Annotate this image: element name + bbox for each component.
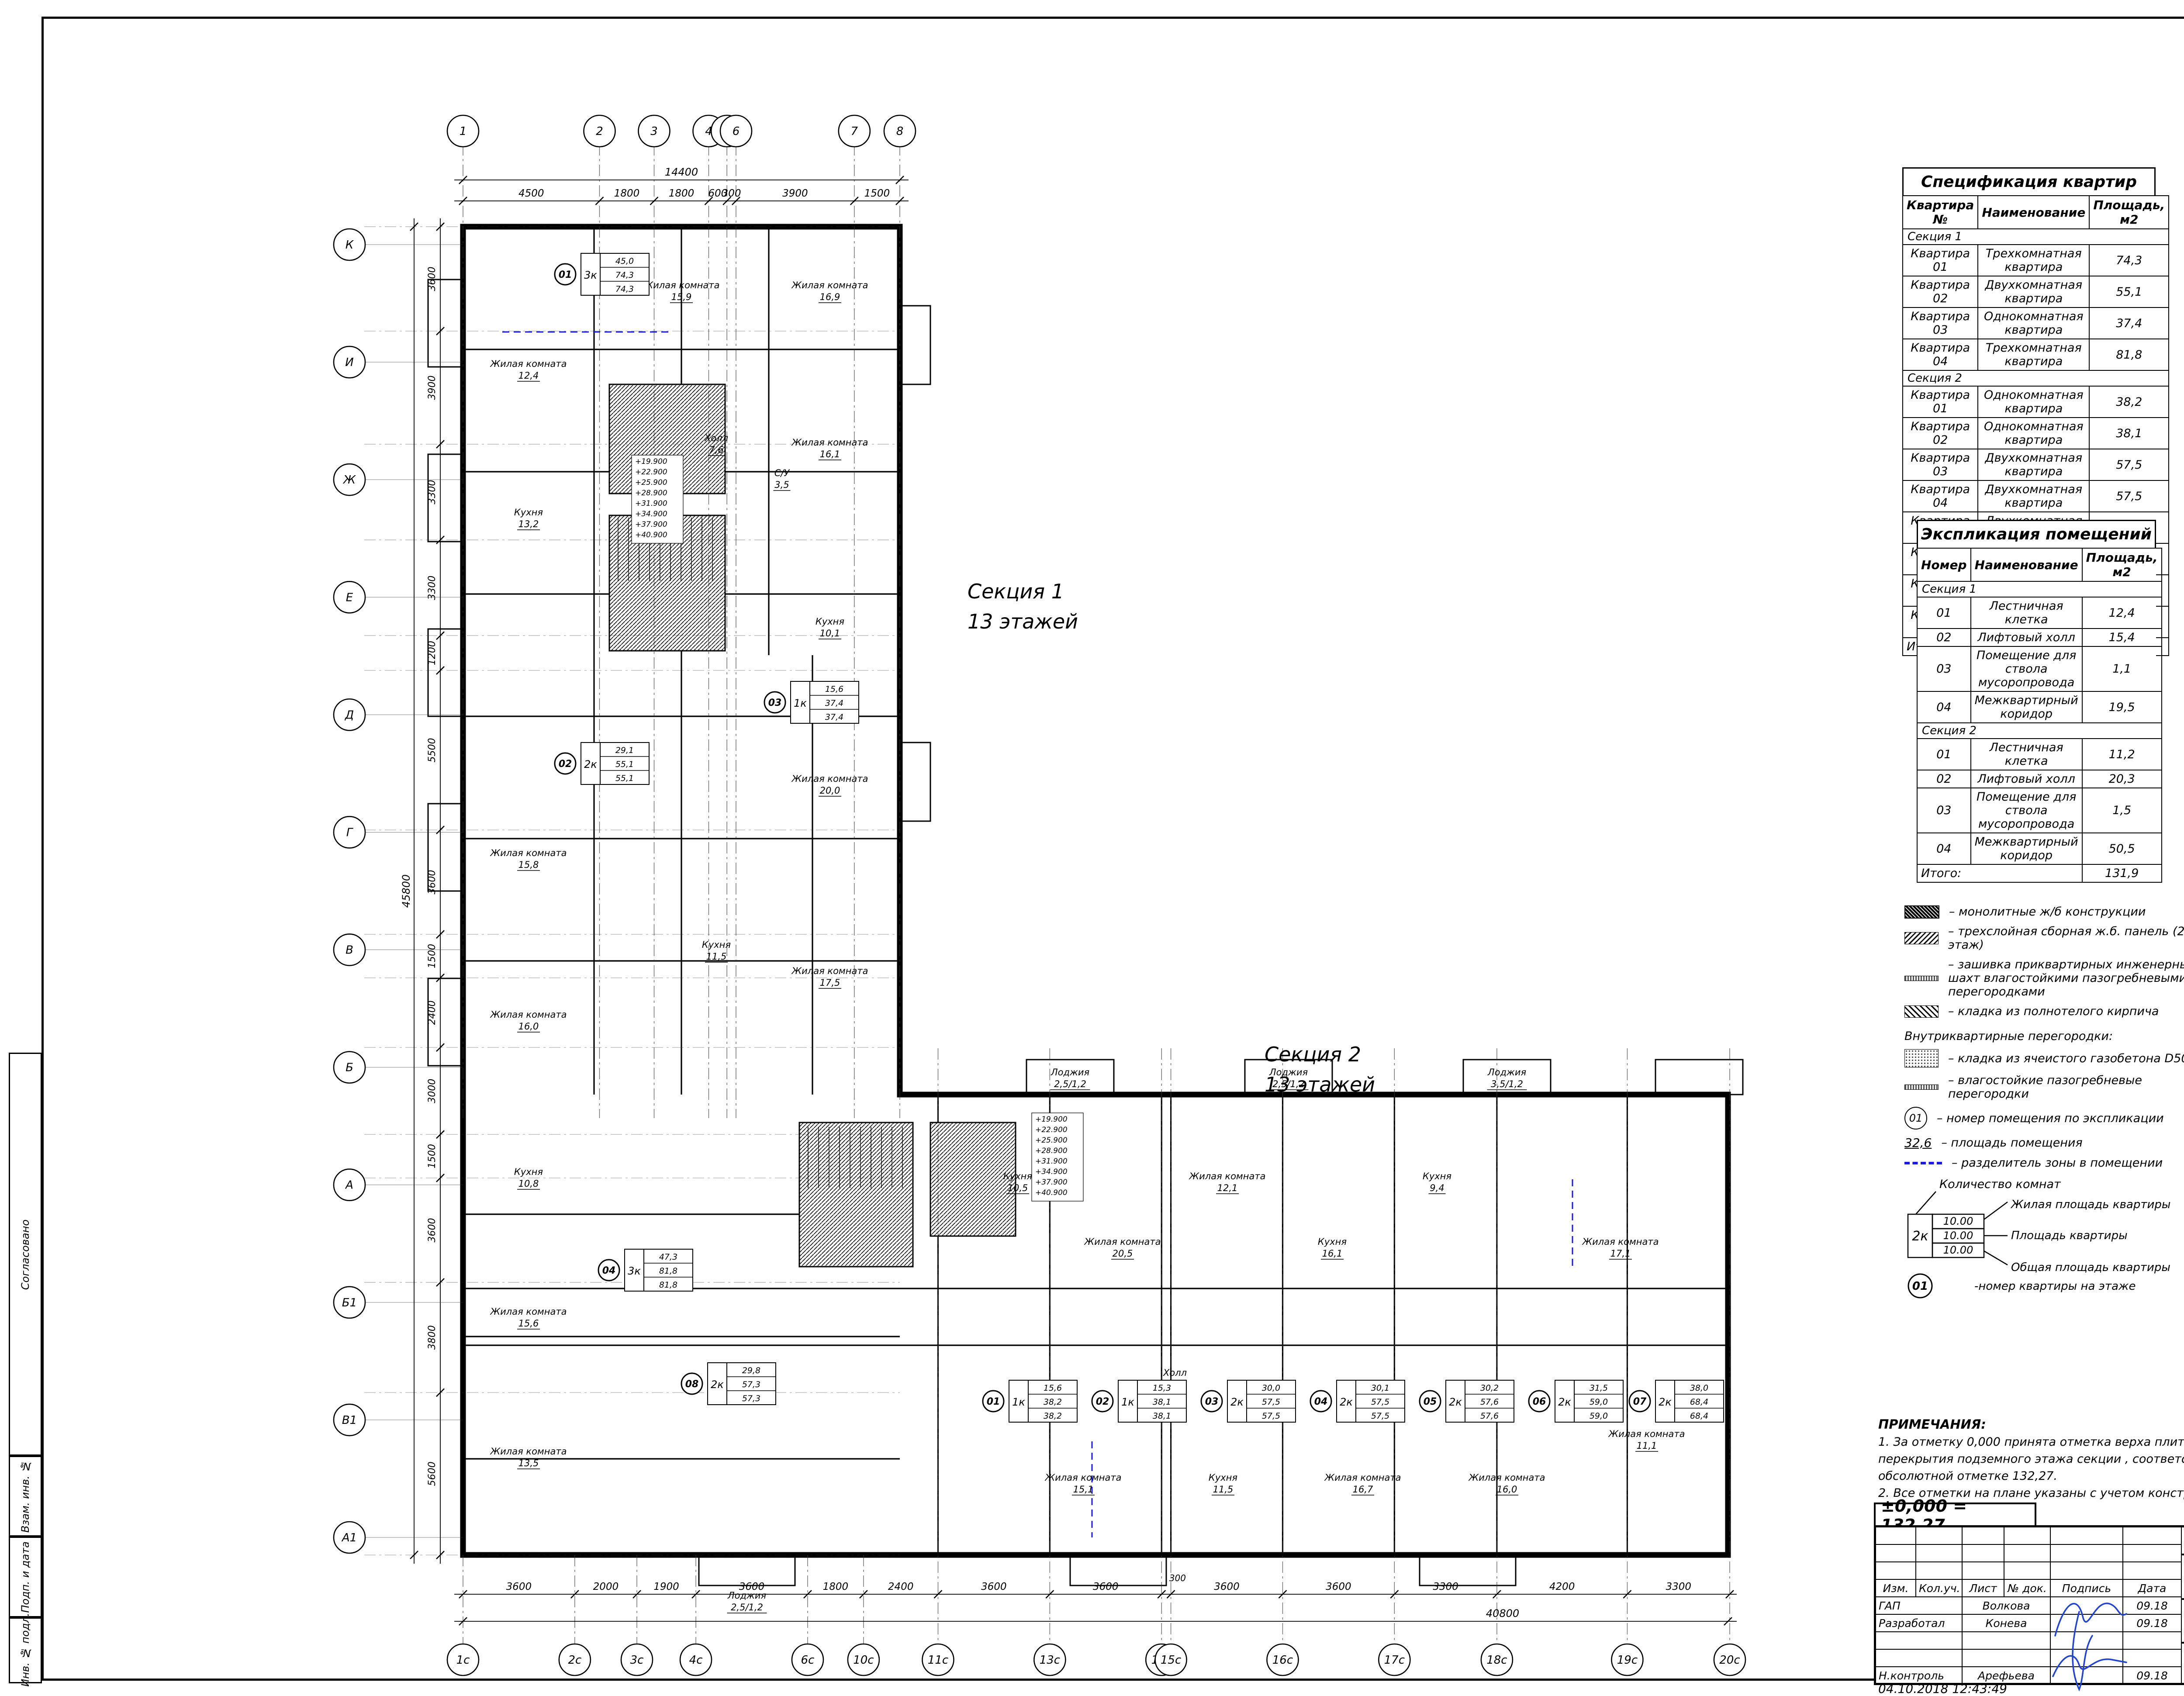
svg-text:3к: 3к [628, 1265, 641, 1277]
svg-text:3,5/1,2: 3,5/1,2 [1491, 1079, 1523, 1089]
table-row: Квартира 03Двухкомнатная квартира57,5 [1903, 449, 2169, 480]
svg-text:3600: 3600 [427, 870, 438, 895]
cell [2050, 1667, 2123, 1684]
svg-text:Жилая комната: Жилая комната [791, 280, 868, 290]
svg-text:1с: 1с [456, 1654, 470, 1667]
cell [2050, 1614, 2123, 1632]
cell [2004, 1562, 2050, 1579]
cell: 50,5 [2082, 833, 2162, 864]
brick-swatch-icon [1904, 1005, 1939, 1018]
table-row: 02Лифтовый холл15,4 [1917, 629, 2162, 646]
svg-text:3000: 3000 [427, 1079, 438, 1103]
svg-text:2400: 2400 [888, 1581, 914, 1592]
svg-text:02: 02 [1096, 1396, 1109, 1407]
svg-text:8: 8 [896, 125, 904, 138]
svg-text:1: 1 [460, 125, 467, 138]
svg-text:3600: 3600 [506, 1581, 532, 1592]
cell [1916, 1562, 1962, 1579]
cell [2050, 1649, 2123, 1667]
svg-text:Холл: Холл [704, 433, 728, 443]
cell: Конева [1962, 1614, 2050, 1632]
svg-text:3600: 3600 [1093, 1581, 1119, 1592]
cell: Итого: [1917, 864, 2082, 882]
svg-text:4200: 4200 [1549, 1581, 1575, 1592]
svg-text:3600: 3600 [1214, 1581, 1240, 1592]
svg-text:16,9: 16,9 [820, 292, 840, 302]
plan-walls [428, 227, 1743, 1585]
svg-text:17с: 17с [1384, 1654, 1405, 1667]
svg-text:Общая площадь квартиры: Общая площадь квартиры [2011, 1261, 2170, 1274]
cell: 57,5 [2089, 480, 2169, 512]
cell: 81,8 [2089, 339, 2169, 370]
svg-text:11,5: 11,5 [1213, 1484, 1234, 1495]
svg-text:3600: 3600 [427, 267, 438, 291]
cell [1962, 1527, 2004, 1544]
sign-row: ГАПВолкова09.18 [1876, 1597, 2181, 1614]
svg-text:11,1: 11,1 [1637, 1440, 1657, 1451]
cell: 03 [1917, 646, 1971, 691]
svg-text:Жилая комната: Жилая комната [1189, 1171, 1266, 1181]
cell: Помещение для ствола мусоропровода [1971, 646, 2082, 691]
legend-item: Внутриквартирные перегородки: [1904, 1029, 2184, 1043]
svg-text:37,4: 37,4 [825, 712, 843, 722]
cell: 37,4 [2089, 307, 2169, 339]
svg-text:12,1: 12,1 [1217, 1183, 1238, 1193]
svg-text:15,6: 15,6 [518, 1318, 539, 1329]
svg-text:10,1: 10,1 [820, 628, 840, 639]
cell: Помещение для ствола мусоропровода [1971, 788, 2082, 833]
cell: Лист [1962, 1579, 2004, 1597]
svg-text:+31.900: +31.900 [635, 499, 667, 508]
cell: Двухкомнатная квартира [1978, 276, 2089, 307]
cell: Однокомнатная квартира [1978, 386, 2089, 418]
cell: 1,1 [2082, 646, 2162, 691]
legend-item: – кладка из полнотелого кирпича [1904, 1005, 2184, 1018]
svg-text:10,8: 10,8 [518, 1178, 539, 1189]
svg-text:Кухня: Кухня [816, 616, 844, 627]
cell [2004, 1527, 2050, 1544]
cell: № док. [2004, 1579, 2050, 1597]
cell: Межквартирный коридор [1971, 833, 2082, 864]
svg-text:А1: А1 [341, 1531, 357, 1544]
svg-text:Кухня: Кухня [514, 1167, 543, 1177]
svg-text:57,5: 57,5 [1371, 1397, 1389, 1407]
svg-text:Жилая комната: Жилая комната [643, 280, 720, 290]
svg-text:57,5: 57,5 [1262, 1411, 1280, 1421]
svg-text:10.00: 10.00 [1943, 1244, 1973, 1256]
sign-row [1876, 1632, 2181, 1649]
cell [2123, 1632, 2181, 1649]
svg-text:В1: В1 [342, 1414, 357, 1427]
title-block-botrow: План 3-13 этажа. М 1:100 ПИК ГРУППА ООО … [2182, 1644, 2184, 1681]
svg-text:15,6: 15,6 [825, 684, 843, 694]
svg-text:57,5: 57,5 [1371, 1411, 1389, 1421]
svg-text:Жилая комната: Жилая комната [1324, 1472, 1401, 1483]
cell [1876, 1649, 1962, 1667]
svg-text:+34.900: +34.900 [635, 510, 667, 518]
svg-text:2к: 2к [1340, 1396, 1353, 1408]
svg-text:03: 03 [1205, 1396, 1219, 1407]
svg-text:10.00: 10.00 [1943, 1230, 1973, 1242]
legend-text: – зашивка приквартирных инженерных шахт … [1948, 958, 2184, 998]
svg-text:4с: 4с [689, 1654, 703, 1667]
legend: – монолитные ж/б конструкции– трехслойна… [1904, 899, 2184, 1310]
table-row: 01Лестничная клетка11,2 [1917, 739, 2162, 770]
cell: Однокомнатная квартира [1978, 307, 2089, 339]
svg-text:1500: 1500 [427, 1144, 438, 1168]
blank-row [1876, 1562, 2181, 1579]
svg-text:07: 07 [1633, 1396, 1647, 1407]
svg-text:Жилая комната: Жилая комната [791, 437, 868, 448]
cell [1916, 1544, 1962, 1562]
svg-text:Кухня: Кухня [1318, 1237, 1347, 1247]
svg-text:57,6: 57,6 [1480, 1411, 1499, 1421]
svg-text:57,3: 57,3 [742, 1394, 760, 1403]
svg-text:10.00: 10.00 [1943, 1215, 1973, 1227]
legend-text: – трехслойная сборная ж.б. панель (2-19 … [1948, 925, 2184, 952]
svg-text:16,0: 16,0 [1497, 1484, 1517, 1495]
svg-text:Площадь квартиры: Площадь квартиры [2011, 1229, 2128, 1242]
cell: ГАП [1876, 1597, 1962, 1614]
svg-text:4500: 4500 [518, 188, 544, 199]
legend-item: 01– номер помещения по экспликации [1904, 1107, 2184, 1130]
svg-text:1800: 1800 [614, 188, 640, 199]
svg-text:Жилая комната: Жилая комната [791, 774, 868, 784]
svg-text:3300: 3300 [427, 480, 438, 504]
svg-text:38,1: 38,1 [1153, 1411, 1171, 1421]
spec-col-name: Наименование [1978, 196, 2089, 229]
apartment-tag-legend: Количество комнат2к10.0010.0010.00Жилая … [1904, 1176, 2184, 1307]
legend-item: – зашивка приквартирных инженерных шахт … [1904, 958, 2184, 998]
svg-text:2к: 2к [1230, 1396, 1244, 1408]
svg-text:1500: 1500 [864, 188, 890, 199]
title-block-sign-grid: Изм.Кол.уч.Лист№ док.ПодписьДатаГАПВолко… [1875, 1527, 2182, 1685]
svg-text:+34.900: +34.900 [1035, 1168, 1068, 1176]
section-row: Секция 2 [1917, 723, 2162, 739]
svg-text:2к: 2к [1449, 1396, 1462, 1408]
cell: Трехкомнатная квартира [1978, 245, 2089, 276]
svg-text:+28.900: +28.900 [635, 489, 667, 497]
svg-text:1800: 1800 [669, 188, 695, 199]
table-row: 03Помещение для ствола мусоропровода1,5 [1917, 788, 2162, 833]
svg-text:В: В [346, 944, 353, 957]
cell: 09.18 [2123, 1597, 2181, 1614]
svg-text:10,5: 10,5 [1008, 1183, 1028, 1193]
blank-row [1876, 1544, 2181, 1562]
svg-text:47,3: 47,3 [659, 1252, 677, 1262]
table-row: 01Лестничная клетка12,4 [1917, 597, 2162, 629]
title-block: Изм.Кол.уч.Лист№ док.ПодписьДатаГАПВолко… [1874, 1525, 2184, 1685]
svg-text:К: К [346, 238, 354, 252]
title-block-right: 30-0218-РЕН-ПИР-АР-ГЧ «Жилой дом с инжен… [2182, 1527, 2184, 1681]
legend-item: – разделитель зоны в помещении [1904, 1156, 2184, 1170]
svg-text:68,4: 68,4 [1690, 1411, 1708, 1421]
cell: 11,2 [2082, 739, 2162, 770]
total-row: Итого:131,9 [1917, 864, 2162, 882]
svg-text:57,6: 57,6 [1480, 1397, 1499, 1407]
cell: Квартира 04 [1903, 339, 1978, 370]
legend-text: – монолитные ж/б конструкции [1949, 905, 2146, 919]
room-number-icon: 01 [1904, 1107, 1927, 1130]
legend-text: – площадь помещения [1941, 1136, 2082, 1150]
blank-row [1876, 1527, 2181, 1544]
svg-text:300: 300 [1169, 1573, 1186, 1583]
svg-text:3900: 3900 [782, 188, 808, 199]
cell: Секция 2 [1917, 723, 2162, 739]
svg-text:17,1: 17,1 [1610, 1248, 1631, 1259]
svg-text:18с: 18с [1486, 1654, 1507, 1667]
cell: 03 [1917, 788, 1971, 833]
svg-text:38,0: 38,0 [1690, 1383, 1708, 1393]
svg-text:+37.900: +37.900 [1035, 1178, 1068, 1187]
document-designation: 30-0218-РЕН-ПИР-АР-ГЧ [2182, 1527, 2184, 1555]
svg-text:29,1: 29,1 [615, 746, 634, 755]
cell: 04 [1917, 833, 1971, 864]
svg-text:38,1: 38,1 [1153, 1397, 1171, 1407]
legend-text: – влагостойкие пазогребневые перегородки [1948, 1074, 2184, 1101]
svg-text:13,2: 13,2 [518, 519, 539, 529]
svg-text:13,5: 13,5 [518, 1458, 539, 1468]
svg-text:74,3: 74,3 [615, 284, 634, 294]
svg-text:5500: 5500 [427, 738, 438, 763]
svg-text:Б1: Б1 [342, 1296, 357, 1309]
cell: Двухкомнатная квартира [1978, 449, 2089, 480]
svg-text:30,1: 30,1 [1371, 1383, 1389, 1393]
cell: Секция 1 [1903, 229, 2169, 245]
svg-text:Жилая комната: Жилая комната [1084, 1237, 1161, 1247]
svg-text:+28.900: +28.900 [1035, 1147, 1068, 1155]
spec-header-row: Квартира № Наименование Площадь, м2 [1903, 196, 2169, 229]
sign-row: РазработалКонева09.18 [1876, 1614, 2181, 1632]
cell: Квартира 01 [1903, 386, 1978, 418]
svg-text:Жилая комната: Жилая комната [1468, 1472, 1545, 1483]
svg-text:Холл: Холл [1163, 1368, 1187, 1378]
svg-text:04: 04 [1314, 1396, 1328, 1407]
sign-header-row: Изм.Кол.уч.Лист№ док.ПодписьДата [1876, 1579, 2181, 1597]
svg-text:45,0: 45,0 [615, 256, 634, 266]
svg-text:16,1: 16,1 [1322, 1248, 1343, 1259]
svg-text:38,2: 38,2 [1044, 1411, 1062, 1421]
cell: Лифтовый холл [1971, 770, 2082, 788]
cell: Секция 1 [1917, 581, 2162, 597]
table-row: Квартира 01Однокомнатная квартира38,2 [1903, 386, 2169, 418]
table-row: 04Межквартирный коридор50,5 [1917, 833, 2162, 864]
svg-text:12,4: 12,4 [518, 370, 539, 381]
thin-swatch-icon [1904, 976, 1939, 981]
cell: 20,3 [2082, 770, 2162, 788]
legend-text: – разделитель зоны в помещении [1952, 1156, 2163, 1170]
svg-text:2400: 2400 [427, 1000, 438, 1025]
gasblock-swatch-icon [1904, 1049, 1939, 1067]
svg-text:Д: Д [345, 708, 354, 722]
table-row: Квартира 04Трехкомнатная квартира81,8 [1903, 339, 2169, 370]
svg-text:3600: 3600 [427, 1218, 438, 1242]
svg-text:Жилая комната: Жилая комната [791, 966, 868, 976]
svg-text:59,0: 59,0 [1590, 1397, 1608, 1407]
svg-text:30,0: 30,0 [1262, 1383, 1280, 1393]
svg-text:81,8: 81,8 [659, 1280, 677, 1290]
cell: Изм. [1876, 1579, 1916, 1597]
svg-text:3300: 3300 [1433, 1581, 1458, 1592]
svg-text:81,8: 81,8 [659, 1266, 677, 1276]
svg-text:Лоджия: Лоджия [1051, 1067, 1089, 1078]
svg-text:Ж: Ж [342, 473, 356, 487]
svg-text:10с: 10с [853, 1654, 874, 1667]
panel-swatch-icon [1904, 932, 1939, 944]
cell: Дата [2123, 1579, 2181, 1597]
cell: 02 [1917, 629, 1971, 646]
cell: 19,5 [2082, 691, 2162, 723]
svg-text:3300: 3300 [427, 576, 438, 600]
cell: Квартира 04 [1903, 480, 1978, 512]
svg-text:6: 6 [733, 125, 740, 138]
svg-text:29,8: 29,8 [742, 1366, 760, 1375]
svg-text:14400: 14400 [665, 166, 698, 178]
svg-text:3к: 3к [584, 269, 597, 281]
cell: 131,9 [2082, 864, 2162, 882]
svg-text:+37.900: +37.900 [635, 520, 667, 529]
svg-text:15,9: 15,9 [671, 292, 692, 302]
svg-text:Кухня: Кухня [1003, 1171, 1032, 1181]
table-row: 04Межквартирный коридор19,5 [1917, 691, 2162, 723]
svg-text:Жилая комната: Жилая комната [490, 1446, 567, 1457]
svg-text:11с: 11с [928, 1654, 948, 1667]
cell [2004, 1544, 2050, 1562]
svg-text:15,6: 15,6 [1044, 1383, 1062, 1393]
svg-text:Жилая комната: Жилая комната [490, 848, 567, 858]
cell: Лестничная клетка [1971, 739, 2082, 770]
cell [2050, 1597, 2123, 1614]
svg-text:01: 01 [1912, 1280, 1928, 1293]
table-row: Квартира 03Однокомнатная квартира37,4 [1903, 307, 2169, 339]
svg-text:6с: 6с [801, 1654, 815, 1667]
cell: 09.18 [2123, 1667, 2181, 1684]
svg-text:Б: Б [346, 1061, 353, 1074]
svg-text:7: 7 [851, 125, 858, 138]
svg-text:+19.900: +19.900 [1035, 1115, 1068, 1124]
svg-text:Жилая площадь квартиры: Жилая площадь квартиры [2010, 1198, 2170, 1211]
cell [2050, 1632, 2123, 1649]
svg-text:1200: 1200 [427, 641, 438, 665]
spec-col-number: Квартира № [1903, 196, 1978, 229]
svg-text:11,5: 11,5 [706, 951, 727, 962]
svg-text:С/У: С/У [774, 468, 790, 478]
floor-plan-drawing: 4500180018006003003900150014400360020001… [0, 0, 2184, 1696]
cell [2123, 1562, 2181, 1579]
svg-text:Жилая комната: Жилая комната [490, 1306, 567, 1317]
svg-text:15с: 15с [1161, 1654, 1181, 1667]
svg-text:3800: 3800 [427, 1325, 438, 1350]
zero-elevation-box: ±0,000 = 132,27 [1874, 1503, 2036, 1529]
svg-text:Лоджия: Лоджия [727, 1590, 766, 1601]
svg-text:55,1: 55,1 [615, 760, 634, 769]
svg-text:2к: 2к [584, 758, 597, 770]
svg-text:20с: 20с [1719, 1654, 1740, 1667]
svg-text:2с: 2с [568, 1654, 581, 1667]
svg-text:2к: 2к [711, 1378, 724, 1391]
svg-text:1к: 1к [1012, 1396, 1025, 1408]
svg-text:06: 06 [1533, 1396, 1546, 1407]
sheet-title: План 3-13 этажа. М 1:100 [2182, 1644, 2184, 1681]
cell: 12,4 [2082, 597, 2162, 629]
svg-text:03: 03 [768, 698, 782, 708]
cell [1876, 1544, 1916, 1562]
svg-text:59,0: 59,0 [1590, 1411, 1608, 1421]
cell [1876, 1527, 1916, 1544]
svg-text:19с: 19с [1617, 1654, 1638, 1667]
svg-text:68,4: 68,4 [1690, 1397, 1708, 1407]
section-row: Секция 1 [1903, 229, 2169, 245]
cell: 74,3 [2089, 245, 2169, 276]
legend-item: – кладка из ячеистого газобетона D500 [1904, 1049, 2184, 1067]
svg-text:16,1: 16,1 [820, 449, 840, 459]
cell [2123, 1544, 2181, 1562]
svg-text:3с: 3с [630, 1654, 644, 1667]
cell [1962, 1562, 2004, 1579]
cell: 01 [1917, 597, 1971, 629]
area-sample: 32,6 [1904, 1136, 1932, 1150]
cell [1962, 1632, 2050, 1649]
cell: Квартира 03 [1903, 307, 1978, 339]
svg-text:Жилая комната: Жилая комната [1608, 1429, 1685, 1439]
cell [2123, 1649, 2181, 1667]
svg-text:55,1: 55,1 [615, 774, 634, 783]
object-name: Жилой дом. Корпус 1.1 [2182, 1600, 2184, 1642]
sign-row [1876, 1649, 2181, 1667]
svg-text:3,5: 3,5 [774, 480, 789, 490]
svg-text:+25.900: +25.900 [1035, 1136, 1068, 1145]
svg-text:Кухня: Кухня [514, 507, 543, 518]
svg-text:3300: 3300 [1666, 1581, 1691, 1592]
svg-text:1к: 1к [794, 697, 807, 709]
thin-swatch-icon [1904, 1085, 1939, 1090]
cell [2050, 1562, 2123, 1579]
legend-item: – трехслойная сборная ж.б. панель (2-19 … [1904, 925, 2184, 952]
cell: Лестничная клетка [1971, 597, 2082, 629]
svg-text:20,5: 20,5 [1113, 1248, 1133, 1259]
cell [1876, 1632, 1962, 1649]
cell: 55,1 [2089, 276, 2169, 307]
svg-text:300: 300 [722, 188, 741, 199]
svg-text:2к: 2к [1558, 1396, 1571, 1408]
svg-text:+40.900: +40.900 [635, 531, 667, 539]
section-row: Секция 1 [1917, 581, 2162, 597]
svg-text:2к: 2к [1912, 1229, 1928, 1244]
svg-text:+25.900: +25.900 [635, 478, 667, 487]
svg-text:31,5: 31,5 [1590, 1383, 1608, 1393]
svg-text:Жилая комната: Жилая комната [490, 1009, 567, 1020]
spec-table-title: Спецификация квартир [1902, 167, 2156, 195]
rooms-explication-table: Экспликация помещений Номер Наименование… [1917, 520, 2156, 883]
svg-text:2к: 2к [1659, 1396, 1672, 1408]
cell: Лифтовый холл [1971, 629, 2082, 646]
svg-text:Кухня: Кухня [1423, 1171, 1451, 1181]
svg-text:04: 04 [602, 1265, 616, 1276]
cell [1916, 1527, 1962, 1544]
svg-text:А: А [345, 1179, 353, 1192]
svg-text:1900: 1900 [653, 1581, 679, 1592]
svg-text:-номер квартиры на этаже: -номер квартиры на этаже [1974, 1280, 2136, 1293]
project-name: «Жилой дом с инженерными сетями и благоу… [2182, 1555, 2184, 1600]
spec-col-area: Площадь, м2 [2089, 196, 2169, 229]
section1-label: Секция 1 13 этажей [968, 577, 1078, 637]
title-block-midrow: Жилой дом. Корпус 1.1 Стадия Лист Листов… [2182, 1600, 2184, 1644]
svg-text:2: 2 [596, 125, 603, 138]
svg-text:Количество комнат: Количество комнат [1939, 1178, 2061, 1191]
svg-text:+31.900: +31.900 [1035, 1157, 1068, 1166]
svg-text:15,1: 15,1 [1073, 1484, 1094, 1495]
cell [2050, 1527, 2123, 1544]
